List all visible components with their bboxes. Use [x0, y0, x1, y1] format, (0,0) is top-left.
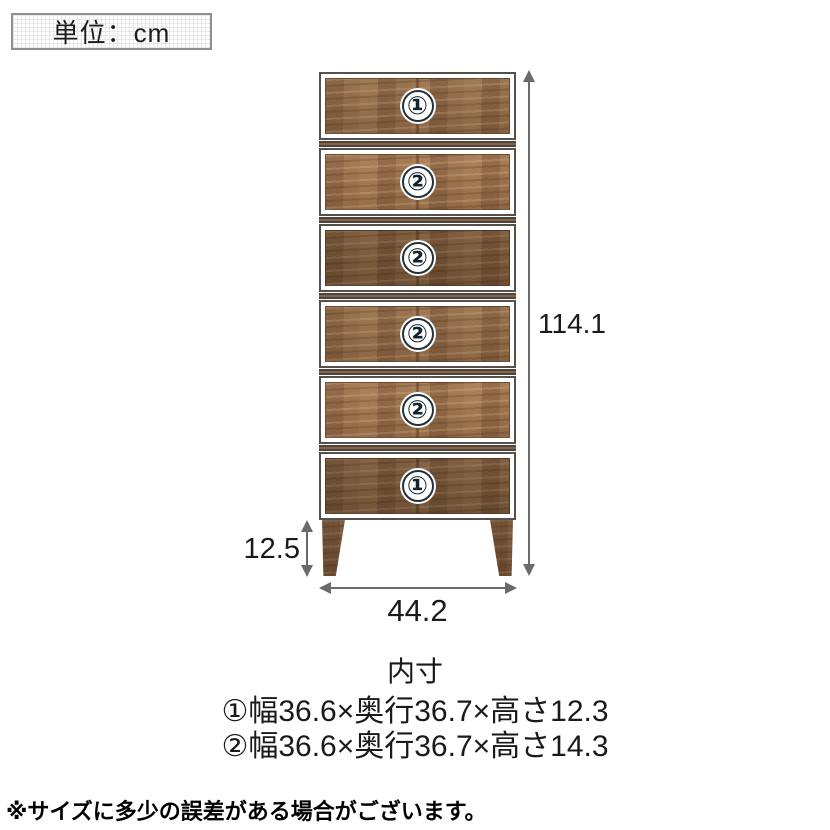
drawer-5-number-badge: ②	[400, 392, 436, 428]
inner-dimension-spec-1: ①幅36.6×奥行36.7×高さ12.3	[0, 694, 830, 729]
legs	[319, 520, 516, 576]
inner-dimensions-block: 内寸 ①幅36.6×奥行36.7×高さ12.3 ②幅36.6×奥行36.7×高さ…	[0, 650, 830, 764]
drawer-1-number-badge: ①	[400, 88, 436, 124]
unit-label-box: 単位：cm	[11, 13, 212, 50]
inner-dimensions-title: 内寸	[0, 650, 830, 690]
left-leg	[322, 520, 345, 576]
total-height-dimension-line	[528, 74, 530, 568]
drawer-5: ②	[319, 376, 516, 444]
right-leg	[490, 520, 513, 576]
drawer-3-number: ②	[407, 246, 428, 271]
chest-front-view: ① ② ② ② ② ①	[319, 72, 516, 520]
carcass-strip	[319, 216, 516, 224]
carcass-strip	[319, 368, 516, 376]
drawer-3: ②	[319, 224, 516, 292]
drawer-2-number-badge: ②	[400, 164, 436, 200]
drawer-6-number-badge: ①	[400, 468, 436, 504]
width-dimension-line	[324, 587, 512, 589]
size-tolerance-note: ※サイズに多少の誤差がある場合がございます。	[6, 794, 487, 826]
drawer-4-number: ②	[407, 322, 428, 347]
arrow-down-icon	[301, 565, 313, 577]
drawer-3-number-badge: ②	[400, 240, 436, 276]
drawer-6-number: ①	[407, 474, 428, 499]
arrow-up-icon	[523, 70, 535, 82]
drawer-2-number: ②	[407, 170, 428, 195]
leg-height-value: 12.5	[240, 533, 300, 566]
carcass-strip	[319, 292, 516, 300]
drawer-6: ①	[319, 452, 516, 520]
inner-dimension-spec-2: ②幅36.6×奥行36.7×高さ14.3	[0, 729, 830, 764]
drawer-4: ②	[319, 300, 516, 368]
drawer-2: ②	[319, 148, 516, 216]
width-value: 44.2	[319, 593, 516, 629]
furniture-dimension-diagram: 単位：cm ① ② ② ② ② ①	[0, 0, 830, 830]
drawer-4-number-badge: ②	[400, 316, 436, 352]
total-height-value: 114.1	[538, 308, 606, 340]
carcass-strip	[319, 140, 516, 148]
unit-label: 単位：cm	[53, 13, 171, 50]
drawer-5-number: ②	[407, 398, 428, 423]
carcass-strip	[319, 444, 516, 452]
drawer-1-number: ①	[407, 94, 428, 119]
arrow-down-icon	[523, 564, 535, 576]
arrow-up-icon	[301, 520, 313, 532]
drawer-1: ①	[319, 72, 516, 140]
